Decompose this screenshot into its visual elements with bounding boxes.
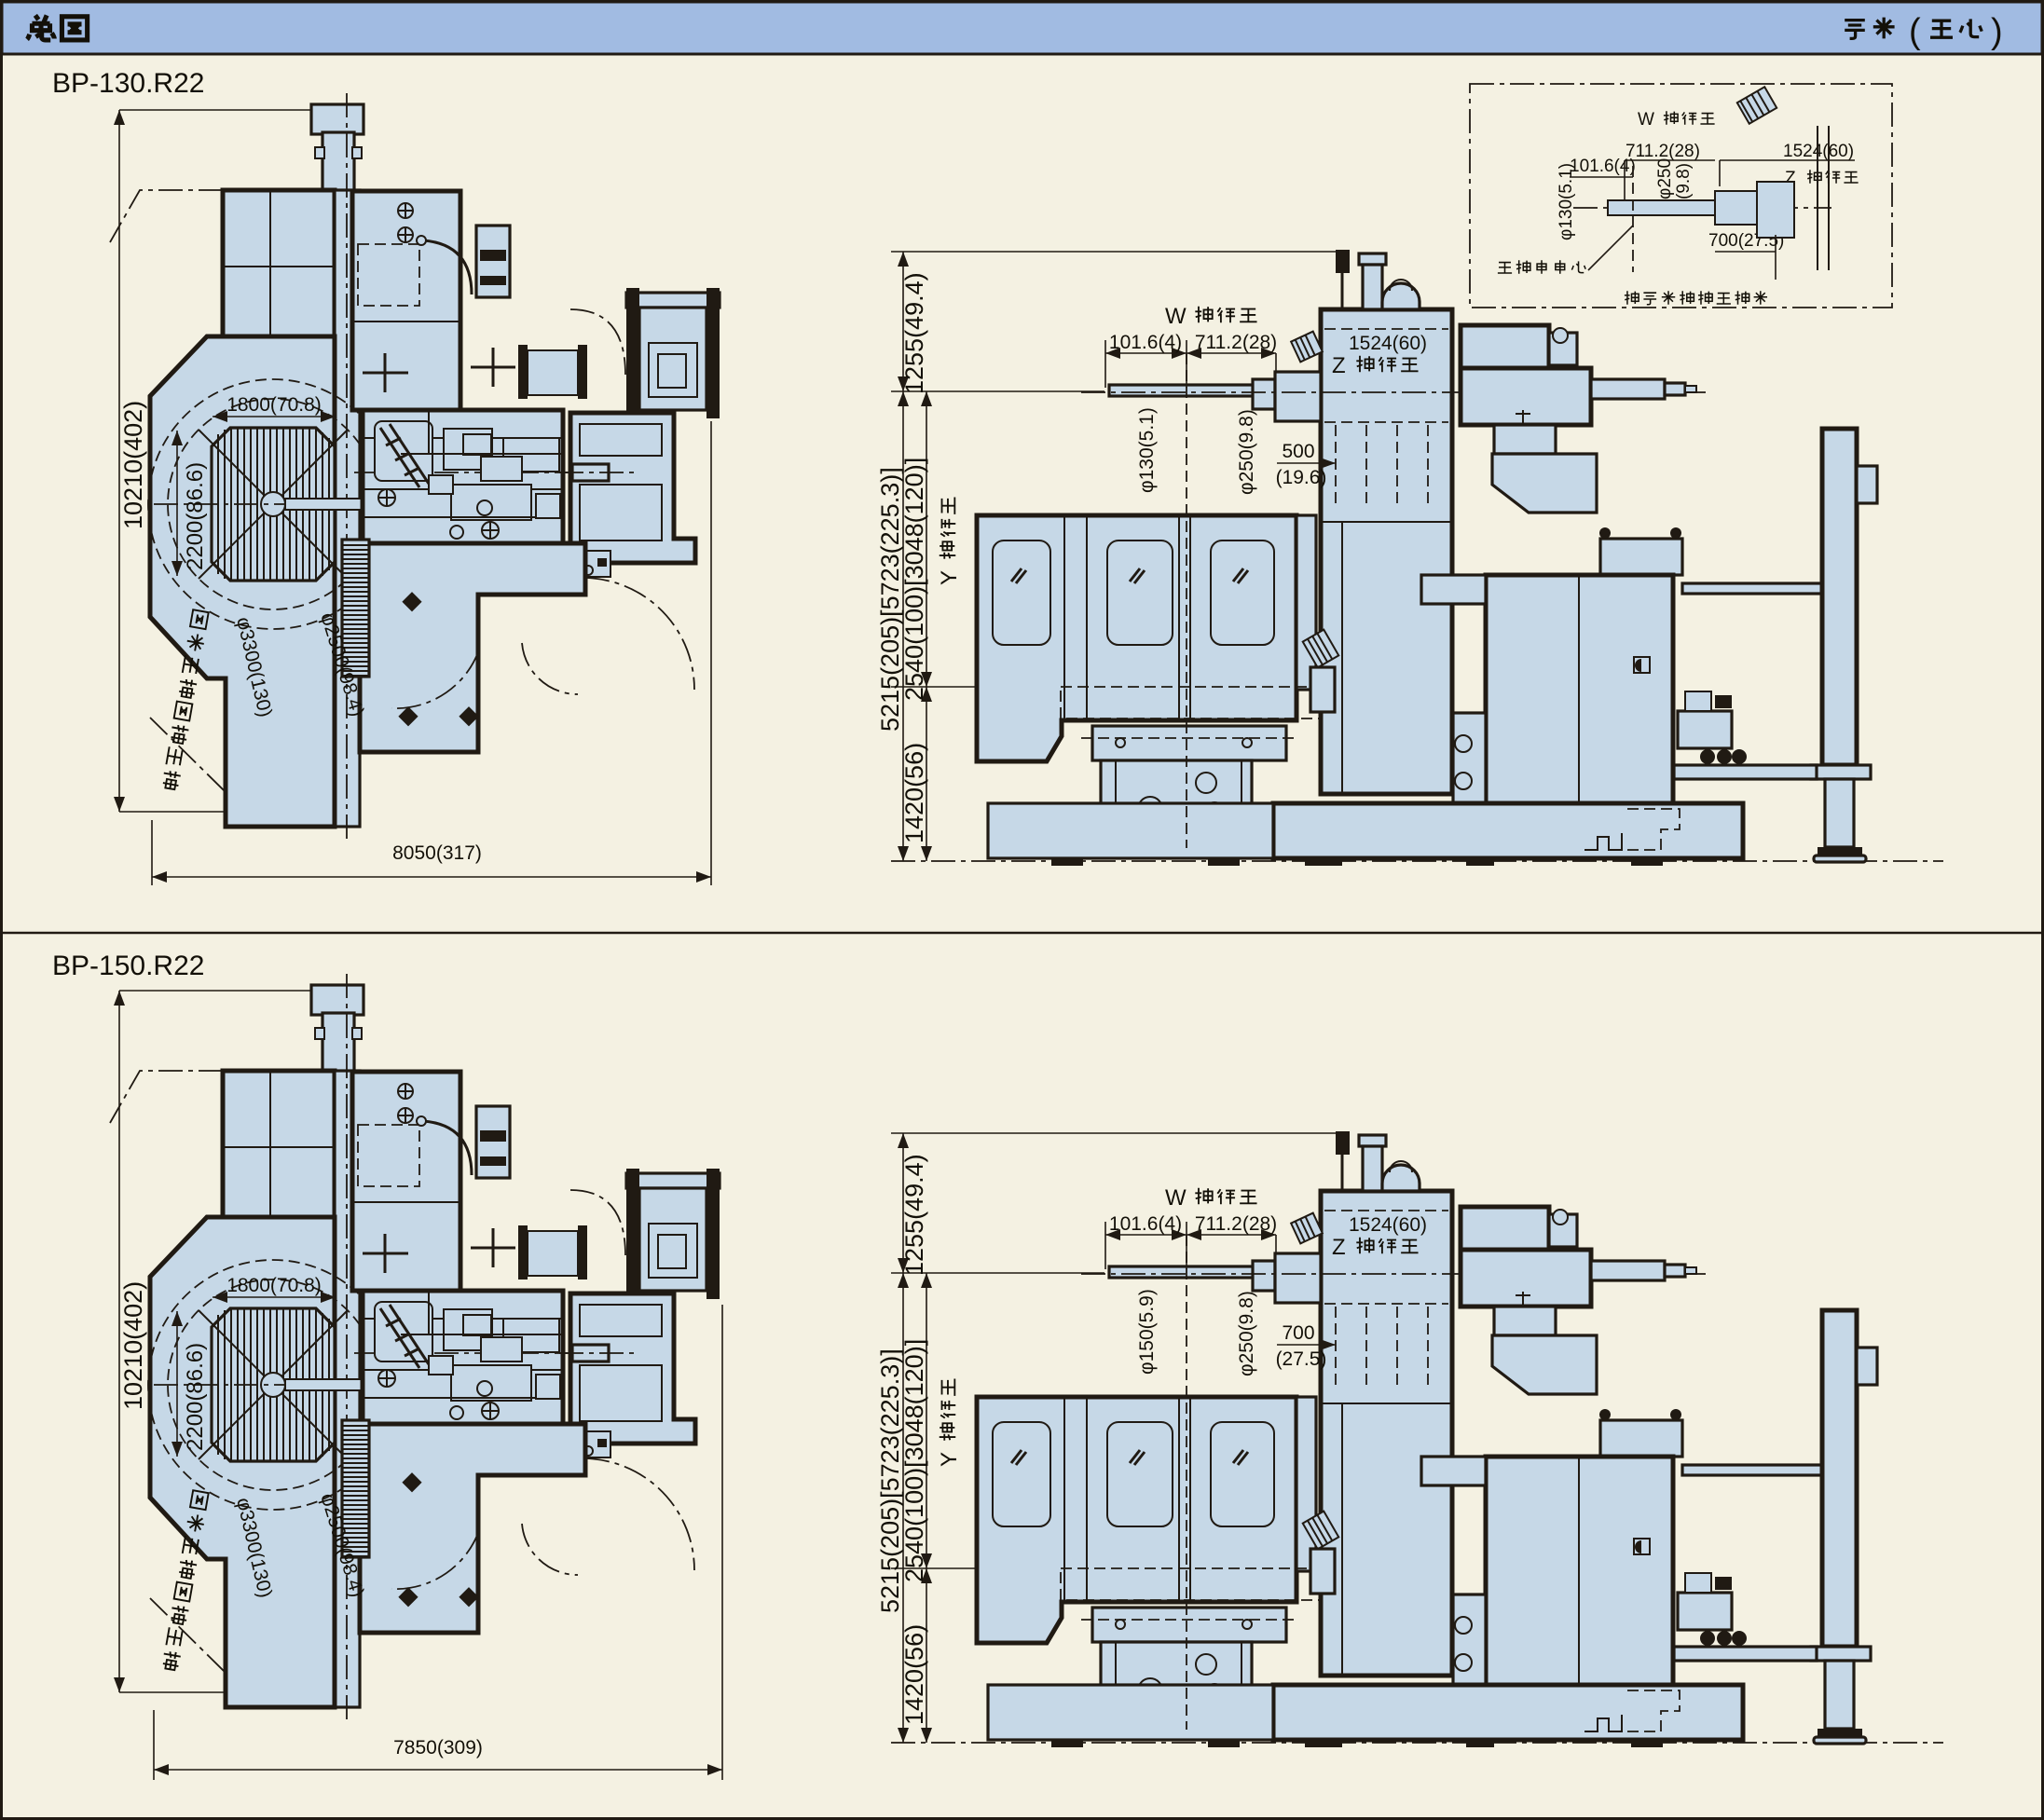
svg-text:711.2(28): 711.2(28) [1195, 332, 1277, 353]
svg-text:1800(70.8): 1800(70.8) [226, 394, 322, 416]
svg-text:W: W [1165, 304, 1187, 329]
svg-text:φ250(9.8): φ250(9.8) [1236, 409, 1257, 495]
svg-text:10210(402): 10210(402) [119, 401, 147, 529]
svg-text:φ250: φ250 [1655, 158, 1675, 199]
svg-text:Z: Z [1332, 353, 1346, 378]
svg-text:Y: Y [937, 570, 962, 585]
svg-text:711.2(28): 711.2(28) [1626, 142, 1700, 161]
svg-text:BP-150.R22: BP-150.R22 [52, 951, 204, 981]
svg-text:2200(86.6): 2200(86.6) [183, 462, 208, 570]
svg-text:(19.6): (19.6) [1276, 467, 1327, 488]
svg-text:1524(60): 1524(60) [1783, 142, 1854, 161]
svg-text:1255(49.4): 1255(49.4) [900, 272, 928, 394]
svg-text:8050(317): 8050(317) [392, 842, 482, 864]
svg-text:2540(100)[3048(120)]: 2540(100)[3048(120)] [900, 458, 928, 701]
svg-text:1524(60): 1524(60) [1349, 333, 1427, 354]
svg-text:φ130(5.1): φ130(5.1) [1136, 407, 1158, 493]
svg-text:(27.5): (27.5) [1276, 1348, 1327, 1370]
svg-text:BP-130.R22: BP-130.R22 [52, 68, 204, 99]
svg-text:(: ( [1909, 12, 1921, 51]
svg-text:): ) [1991, 12, 2003, 51]
svg-text:(9.8): (9.8) [1674, 163, 1694, 199]
svg-text:500: 500 [1282, 441, 1314, 462]
svg-text:φ150(5.9): φ150(5.9) [1136, 1289, 1158, 1375]
svg-text:φ130(5.1): φ130(5.1) [1557, 163, 1576, 240]
svg-text:W: W [1638, 110, 1654, 130]
svg-text:101.6(4): 101.6(4) [1570, 157, 1636, 176]
svg-text:101.6(4): 101.6(4) [1109, 332, 1182, 353]
svg-text:700: 700 [1282, 1322, 1314, 1344]
svg-text:7850(309): 7850(309) [393, 1737, 483, 1758]
svg-text:1420(56): 1420(56) [900, 743, 928, 843]
